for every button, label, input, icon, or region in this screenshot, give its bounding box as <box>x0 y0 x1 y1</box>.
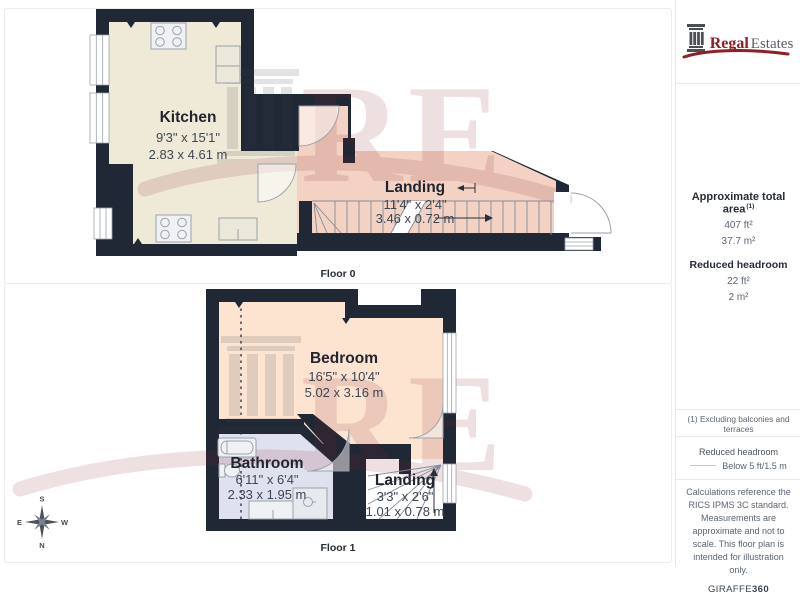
total-area-metric: 37.7 m² <box>722 236 756 247</box>
floorplan-page: { "branding": { "logo_primary": "Regal",… <box>0 0 800 566</box>
area-summary-section: Approximate total area(1) 407 ft² 37.7 m… <box>676 83 800 410</box>
bedroom-label: Bedroom <box>310 350 378 367</box>
kitchen-window-upper <box>90 35 109 85</box>
bathroom-label: Bathroom <box>230 455 303 472</box>
reduced-headroom-title: Reduced headroom <box>689 259 787 271</box>
floor0-plan: RE <box>5 9 671 283</box>
total-area-label: Approximate total area <box>692 191 786 216</box>
oven-icon <box>216 46 240 83</box>
landing0-label: Landing <box>385 179 445 196</box>
bedroom-window-lower <box>443 464 456 503</box>
floor0-panel: RE <box>4 8 672 284</box>
compass-bottom-label: N <box>39 541 44 550</box>
legend-section: Reduced headroom Below 5 ft/1.5 m <box>676 436 800 480</box>
compass-rose: S N E W <box>14 492 70 550</box>
landing1-dims-imperial: 3'3" x 2'6" <box>377 489 434 504</box>
legend-line-sample <box>690 465 716 466</box>
landing0-dims-metric: 3.46 x 0.72 m <box>376 211 455 226</box>
total-area-title: Approximate total area(1) <box>676 191 800 216</box>
provider-name: GIRAFFE <box>708 584 752 595</box>
agency-logo: RegalEstates <box>684 23 794 59</box>
floor1-plan: RE <box>5 284 671 562</box>
disclaimer-section: Calculations reference the RICS IPMS 3C … <box>676 479 800 566</box>
floor0-caption: Floor 0 <box>5 268 671 280</box>
legend-title: Reduced headroom <box>699 447 778 457</box>
reduced-headroom-imperial: 22 ft² <box>727 276 750 287</box>
footnote-section: (1) Excluding balconies and terraces <box>676 409 800 437</box>
hob-top-icon <box>151 23 186 49</box>
landing0-dims-imperial: 11'4" x 2'4" <box>383 197 446 212</box>
total-area-footnote-marker: (1) <box>746 203 754 210</box>
logo-swoosh-icon <box>682 47 790 59</box>
entry-door-arc <box>571 193 611 233</box>
compass-right-label: W <box>61 518 69 527</box>
bedroom-dims-imperial: 16'5" x 10'4" <box>308 369 380 384</box>
landing1-dims-metric: 1.01 x 0.78 m <box>366 504 445 519</box>
kitchen-window-lower <box>94 208 112 239</box>
footnote-text: (1) Excluding balconies and terraces <box>676 414 800 434</box>
kitchen-dims-imperial: 9'3" x 15'1" <box>156 130 220 145</box>
disclaimer-text: Calculations reference the RICS IPMS 3C … <box>686 486 791 577</box>
entry-door-gap <box>554 192 570 233</box>
bathroom-dims-imperial: 6'11" x 6'4" <box>235 472 298 487</box>
hob-bottom-icon <box>156 215 191 242</box>
compass-left-label: E <box>17 518 22 527</box>
kitchen-window-mid <box>90 93 109 143</box>
sink-unit-icon <box>219 218 257 240</box>
logo-section: RegalEstates <box>676 0 800 82</box>
bathroom-dims-metric: 2.33 x 1.95 m <box>228 487 307 502</box>
bedroom-dims-metric: 5.02 x 3.16 m <box>305 385 384 400</box>
floor1-panel: RE <box>4 283 672 563</box>
kitchen-dims-metric: 2.83 x 4.61 m <box>149 147 228 162</box>
legend-row: Below 5 ft/1.5 m <box>690 461 787 471</box>
legend-line-label: Below 5 ft/1.5 m <box>722 461 787 471</box>
kitchen-label: Kitchen <box>160 109 217 126</box>
reduced-headroom-metric: 2 m² <box>729 292 749 303</box>
compass-top-label: S <box>39 495 44 504</box>
bedroom-window-upper <box>443 333 456 413</box>
vanity-icon <box>249 501 297 519</box>
landing-window <box>565 238 593 250</box>
provider-logo: GIRAFFE360 <box>686 584 791 595</box>
floor1-caption: Floor 1 <box>5 542 671 554</box>
total-area-imperial: 407 ft² <box>724 220 752 231</box>
landing1-label: Landing <box>375 472 435 489</box>
info-sidebar: RegalEstates Approximate total area(1) 4… <box>675 0 800 566</box>
provider-suffix: 360 <box>752 584 769 595</box>
